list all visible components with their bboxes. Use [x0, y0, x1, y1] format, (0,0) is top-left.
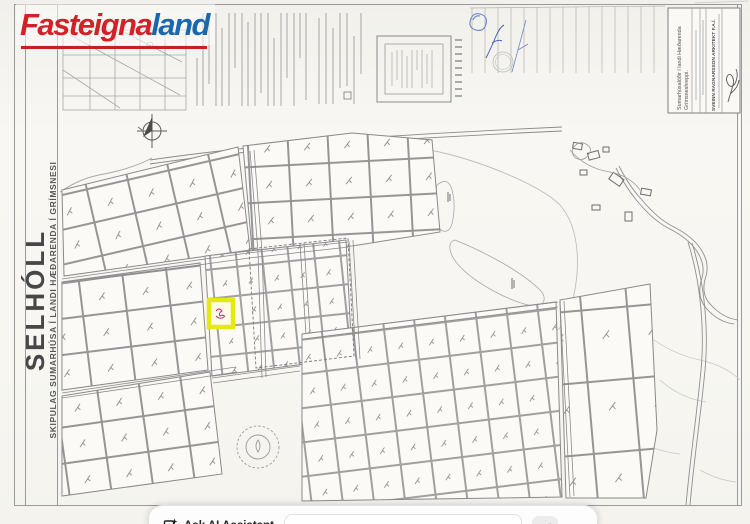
plot-cluster-left-bottom: [62, 372, 222, 496]
approval-stamp-box: [377, 36, 462, 102]
sheet-title: SELHÓLL: [22, 229, 48, 371]
highlighted-plot: [209, 300, 233, 327]
title-block: Sumarhúsalóðir í landi Hæðarenda Grímsne…: [668, 8, 740, 113]
farm-buildings: [570, 142, 651, 221]
logo-underline: [21, 46, 207, 49]
ai-assistant-bar: Ask AI Assistant ⋯: [148, 505, 598, 524]
signature-table: [470, 6, 665, 73]
north-arrow-icon: [137, 114, 167, 148]
project-title-line1: Sumarhúsalóðir í landi Hæðarenda: [676, 26, 683, 110]
ai-prompt-input[interactable]: [284, 514, 522, 524]
ask-ai-assistant-button[interactable]: Ask AI Assistant: [163, 514, 274, 524]
send-button[interactable]: [532, 516, 558, 524]
more-options-button[interactable]: ⋯: [568, 514, 585, 524]
project-title-line2: Grímsneshreppi.: [684, 70, 690, 110]
hill-knoll: [237, 426, 279, 468]
logo-text-red: Fasteigna: [20, 7, 151, 42]
ask-ai-assistant-label: Ask AI Assistant: [184, 520, 274, 524]
plot-cluster-top-center: [243, 133, 440, 250]
site-plan-map: Sumarhúsalóðir í landi Hæðarenda Grímsne…: [0, 0, 750, 524]
sheet-title-vertical: SELHÓLL SKIPULAG SUMARHÚSA Í LANDI HÆÐAR…: [22, 100, 58, 500]
plot-cluster-right-fields: [560, 284, 657, 498]
plot-cluster-left-mid: [62, 263, 208, 390]
fasteignaland-logo: Fasteignaland: [16, 4, 215, 45]
terms-notes-block: [197, 13, 361, 106]
ai-assistant-icon: [163, 518, 178, 524]
sheet-subtitle: SKIPULAG SUMARHÚSA Í LANDI HÆÐARENDA Í G…: [48, 161, 58, 438]
logo-text-blue: land: [151, 7, 209, 42]
document-viewer-screen: Sumarhúsalóðir í landi Hæðarenda Grímsne…: [0, 0, 750, 524]
ink-signature-marks: [470, 14, 528, 72]
plot-cluster-bottom-dense: [302, 302, 562, 501]
